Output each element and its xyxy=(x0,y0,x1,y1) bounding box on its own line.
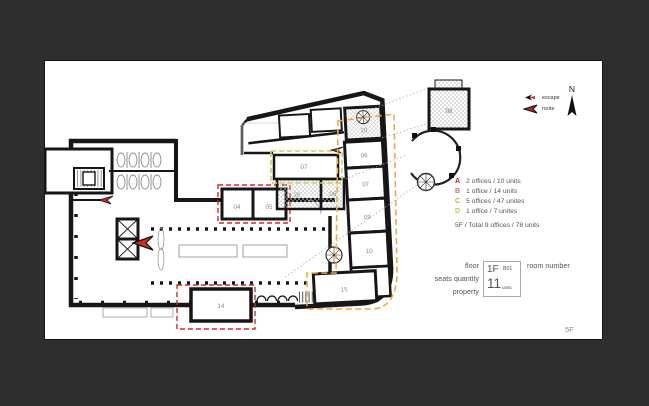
sample-floor: 1F xyxy=(487,264,499,275)
room-number-key: floor seats quantity property 1F B01 11 … xyxy=(411,257,601,307)
entry-room-2 xyxy=(311,108,342,132)
legend-item-a: A 2 offices / 10 units xyxy=(455,178,539,188)
room-06m-label: 06 xyxy=(330,191,337,198)
bench-right xyxy=(151,308,173,317)
room-08-label: 08 xyxy=(446,108,453,115)
north-indicator: N xyxy=(563,84,581,123)
stairs xyxy=(74,168,104,189)
floor-key-label: floor xyxy=(411,259,479,272)
legend-text-c: 5 offices / 47 unites xyxy=(466,198,524,205)
plan-sheet: 04 05 07 20 06 xyxy=(44,60,603,340)
escape-label: escape xyxy=(542,95,560,101)
room-04-label: 04 xyxy=(234,204,241,211)
curtain xyxy=(158,228,164,270)
sample-units: units xyxy=(502,285,512,290)
room-14-label: 14 xyxy=(218,303,225,310)
slide-background: 04 05 07 20 06 xyxy=(0,0,649,406)
north-arrow-icon xyxy=(563,94,581,118)
route-label: route xyxy=(542,106,555,112)
sheet-floor-label: 5F xyxy=(565,325,574,334)
room-07d-label: 07 xyxy=(301,164,308,171)
room-10c-label: 10 xyxy=(366,248,374,255)
room-05-label: 05 xyxy=(266,204,273,211)
escape-arrow-small xyxy=(99,196,113,204)
bench-left xyxy=(103,308,147,317)
sample-seats: 11 xyxy=(487,276,501,291)
route-icon xyxy=(523,104,540,114)
property-key-label: property xyxy=(411,285,479,298)
legend-letter-c: C xyxy=(455,198,466,205)
table-left xyxy=(179,245,237,257)
room-20-label: 20 xyxy=(294,192,301,199)
legend-letter-b: B xyxy=(455,188,466,195)
room-key-box: 1F B01 11 units xyxy=(483,261,521,297)
spiral-stair-plan xyxy=(326,247,342,263)
stair-detail xyxy=(411,127,461,191)
entry-room-1 xyxy=(279,114,310,138)
leader-2 xyxy=(382,123,429,138)
legend-item-d: D 1 office / 7 unites xyxy=(455,208,539,218)
room-07c-label: 07 xyxy=(362,181,370,188)
escape-row: escape xyxy=(523,92,560,103)
legend-text-d: 1 office / 7 unites xyxy=(466,208,517,215)
room-number-label: room number xyxy=(527,261,570,270)
detail-room-08: 08 xyxy=(429,80,469,129)
route-row: route xyxy=(523,103,560,114)
arches xyxy=(257,296,313,301)
room-key-labels: floor seats quantity property xyxy=(411,259,479,298)
legend-item-b: B 1 office / 14 units xyxy=(455,188,539,198)
legend-letter-a: A xyxy=(455,178,466,185)
escape-icon xyxy=(523,93,540,102)
seats-key-label: seats quantity xyxy=(411,272,479,285)
sample-room-number: B01 xyxy=(503,266,512,272)
wing-left-walls xyxy=(242,119,273,155)
legend-item-c: C 5 offices / 47 unites xyxy=(455,198,539,208)
table-right xyxy=(243,245,287,257)
symbol-legend: escape route xyxy=(523,92,560,114)
room-10t-label: 10 xyxy=(360,127,368,134)
legend-text-a: 2 offices / 10 units xyxy=(466,178,521,185)
detail-spiral xyxy=(418,174,435,191)
north-label: N xyxy=(563,84,581,94)
offices-legend: A 2 offices / 10 units B 1 office / 14 u… xyxy=(455,178,539,229)
toilets xyxy=(45,149,176,193)
elevators xyxy=(117,219,138,259)
room-06c-label: 06 xyxy=(361,152,369,159)
room-15-label: 15 xyxy=(341,286,349,293)
legend-text-b: 1 office / 14 units xyxy=(466,188,517,195)
legend-letter-d: D xyxy=(455,208,466,215)
legend-total: 5F / Total 9 offices / 78 units xyxy=(455,222,539,229)
